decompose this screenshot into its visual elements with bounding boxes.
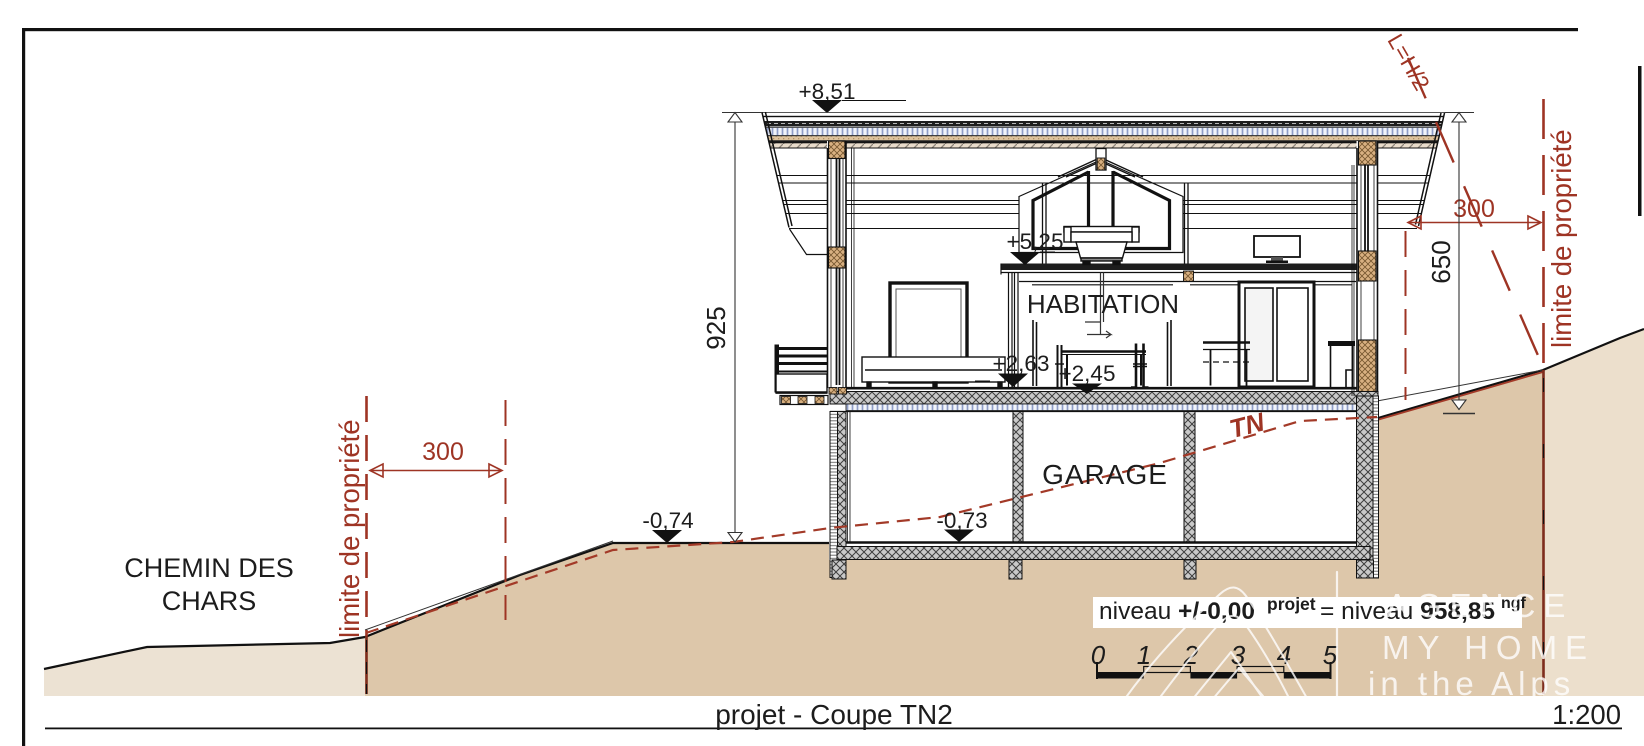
svg-text:projet - Coupe TN2: projet - Coupe TN2 <box>715 699 953 730</box>
svg-text:-0,74: -0,74 <box>642 508 693 533</box>
svg-text:projet: projet <box>1267 594 1316 614</box>
svg-text:AGENCE: AGENCE <box>1386 587 1573 624</box>
svg-text:650: 650 <box>1426 240 1456 283</box>
svg-text:1: 1 <box>1137 640 1151 670</box>
svg-text:CHARS: CHARS <box>162 586 257 616</box>
svg-text:-0,73: -0,73 <box>936 508 987 533</box>
svg-text:1:200: 1:200 <box>1552 699 1621 730</box>
svg-text:HABITATION: HABITATION <box>1027 289 1179 319</box>
svg-text:0: 0 <box>1091 640 1106 670</box>
svg-text:GARAGE: GARAGE <box>1042 459 1168 490</box>
svg-text:+2,63: +2,63 <box>993 351 1050 376</box>
svg-text:925: 925 <box>701 306 731 349</box>
svg-text:MY HOME: MY HOME <box>1382 629 1595 666</box>
svg-text:+5,25: +5,25 <box>1007 229 1064 254</box>
svg-text:niveau +/-0,00: niveau +/-0,00 <box>1099 598 1255 625</box>
svg-text:+2,45: +2,45 <box>1059 361 1116 386</box>
svg-text:limite de propriété: limite de propriété <box>334 419 365 638</box>
svg-text:300: 300 <box>422 438 464 466</box>
svg-text:CHEMIN DES: CHEMIN DES <box>124 553 294 583</box>
svg-text:in the Alps: in the Alps <box>1368 665 1575 702</box>
svg-text:limite de propriété: limite de propriété <box>1546 129 1577 348</box>
